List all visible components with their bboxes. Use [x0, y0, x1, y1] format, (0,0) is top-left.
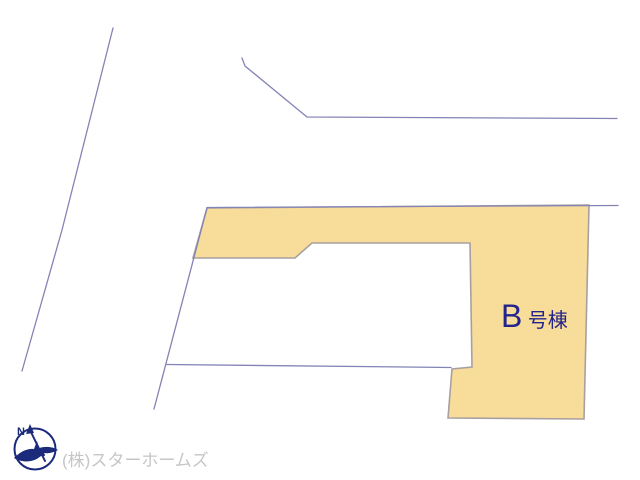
site-plan-canvas: B 号棟 N (株)スターホームズ [0, 0, 640, 480]
bird-silhouette-icon [14, 441, 58, 461]
site-plan-drawing: B 号棟 N (株)スターホームズ [0, 0, 640, 480]
boundary-line-top-right [242, 58, 617, 119]
building-b-label-suffix: 号棟 [528, 309, 568, 332]
boundary-line-left-diagonal [154, 208, 207, 409]
company-credit: (株)スターホームズ [62, 451, 209, 470]
north-compass-bird-logo: N [14, 424, 58, 470]
building-b-label-letter: B [501, 298, 522, 334]
boundary-line-inner-lot-bottom [167, 365, 451, 368]
boundary-line-left-road [22, 28, 113, 371]
compass-north-label: N [17, 426, 25, 438]
